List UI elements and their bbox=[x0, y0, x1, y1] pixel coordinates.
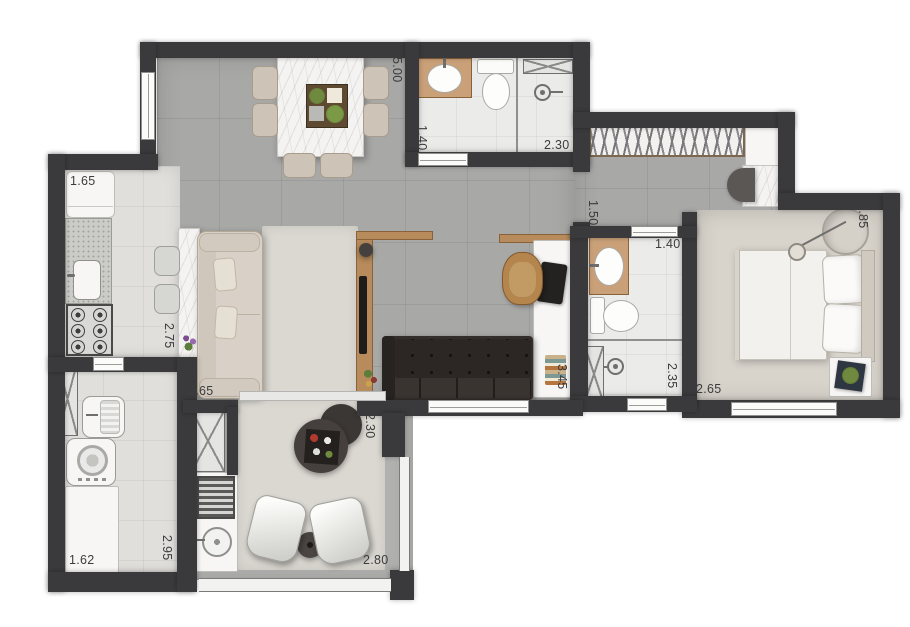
entry-window bbox=[141, 72, 155, 140]
shelf-header bbox=[356, 231, 433, 240]
dining-chair bbox=[252, 103, 278, 137]
vanity-stool bbox=[727, 168, 755, 202]
living-rug bbox=[262, 226, 358, 402]
wall bbox=[682, 212, 697, 404]
dimension-label: 2.35 bbox=[665, 363, 679, 389]
sofa-pillow bbox=[214, 305, 238, 339]
balcony-railing-side bbox=[399, 457, 410, 571]
speaker-icon bbox=[359, 243, 373, 257]
bedroom-window bbox=[731, 402, 837, 416]
dimension-label: 2.30 bbox=[544, 138, 570, 152]
dimension-label: 1.40 bbox=[415, 125, 429, 151]
tank-washboard bbox=[100, 400, 120, 434]
wall bbox=[48, 572, 195, 592]
shower-screen bbox=[588, 339, 682, 341]
wall bbox=[778, 193, 900, 210]
study-window bbox=[428, 400, 529, 413]
bed-fold-line bbox=[790, 251, 791, 359]
sofa-arm bbox=[199, 233, 260, 252]
washer-door-icon bbox=[77, 445, 108, 476]
washer-knobs bbox=[78, 478, 106, 481]
bed-foot-line bbox=[735, 250, 740, 360]
centerpiece-plate bbox=[327, 88, 342, 103]
centerpiece-plant2-icon bbox=[326, 105, 344, 123]
bathroom1-door bbox=[418, 153, 468, 166]
wall bbox=[778, 112, 795, 204]
nightstand-plant-icon bbox=[842, 367, 859, 384]
tv bbox=[359, 276, 367, 354]
fridge-divider bbox=[68, 206, 113, 207]
dimension-label: 2.65 bbox=[696, 382, 722, 396]
grill-icon bbox=[197, 476, 235, 519]
dining-chair bbox=[363, 66, 389, 100]
wall bbox=[48, 154, 65, 592]
bar-stool bbox=[154, 246, 180, 276]
bar-stool bbox=[154, 284, 180, 314]
wall bbox=[382, 413, 405, 457]
bath1-tap-icon bbox=[443, 58, 446, 68]
shower-arm-icon bbox=[549, 91, 563, 93]
dimension-label: 2.85 bbox=[856, 203, 870, 229]
kitchen-tap-icon bbox=[67, 274, 75, 277]
shower-head-icon bbox=[607, 358, 624, 375]
wall bbox=[227, 407, 238, 475]
toilet-bowl bbox=[603, 300, 639, 332]
dimension-label: 1.40 bbox=[655, 237, 681, 251]
dimension-label: 2.30 bbox=[363, 413, 377, 439]
kitchen-sink bbox=[73, 260, 101, 300]
shower-screen bbox=[516, 58, 518, 153]
tank-tap-icon bbox=[86, 414, 98, 416]
wall bbox=[570, 232, 588, 404]
desk-chair-seat bbox=[509, 262, 536, 297]
dimension-label: 5.00 bbox=[390, 57, 404, 83]
burner-icon bbox=[71, 308, 85, 322]
dining-chair bbox=[283, 153, 316, 178]
wardrobe-hangers bbox=[589, 126, 745, 157]
gourmet-sink-icon bbox=[202, 527, 232, 557]
bathroom2-window bbox=[627, 398, 667, 411]
panel-plant-icon bbox=[362, 365, 379, 390]
gourmet-tap-icon bbox=[196, 539, 205, 541]
bed-pillow bbox=[822, 254, 867, 305]
wall bbox=[883, 193, 900, 418]
dimension-label: 2.95 bbox=[160, 535, 174, 561]
centerpiece-plant-icon bbox=[309, 88, 325, 104]
bed-pillow bbox=[822, 303, 867, 354]
bath2-tap-icon bbox=[589, 264, 599, 267]
sofa-pillow bbox=[213, 257, 238, 292]
bath1-niche bbox=[523, 59, 573, 74]
balcony-threshold bbox=[239, 391, 386, 401]
burner-icon bbox=[71, 324, 85, 338]
coffee-tray bbox=[304, 429, 340, 465]
headboard bbox=[861, 250, 875, 362]
dimension-label: 3.45 bbox=[555, 364, 569, 390]
study-sofa-back bbox=[395, 339, 531, 378]
burner-icon bbox=[93, 324, 107, 338]
wall bbox=[573, 42, 590, 172]
dimension-label: 5.65 bbox=[188, 384, 214, 398]
centerpiece-stone bbox=[309, 106, 324, 121]
burner-icon bbox=[93, 340, 107, 354]
wall bbox=[573, 112, 795, 128]
bathroom2-door bbox=[631, 226, 678, 237]
study-sofa-seat bbox=[384, 378, 531, 398]
laundry-door bbox=[93, 357, 124, 371]
toilet-bowl bbox=[482, 73, 510, 110]
bar-flowers-icon bbox=[181, 332, 198, 353]
burner-icon bbox=[71, 340, 85, 354]
lamp-base-icon bbox=[788, 243, 806, 261]
dimension-label: 1.65 bbox=[70, 174, 96, 188]
dimension-label: 1.50 bbox=[586, 200, 600, 226]
bed bbox=[735, 250, 827, 360]
dining-chair bbox=[252, 66, 278, 100]
toilet-tank bbox=[477, 59, 514, 74]
dimension-label: 1.62 bbox=[69, 553, 95, 567]
burner-icon bbox=[93, 308, 107, 322]
wall bbox=[140, 42, 590, 58]
dimension-label: 2.75 bbox=[162, 323, 176, 349]
dimension-label: 2.80 bbox=[363, 553, 389, 567]
balcony-pillar bbox=[390, 570, 414, 600]
bath1-sink bbox=[427, 64, 462, 93]
dining-chair bbox=[363, 103, 389, 137]
dining-chair bbox=[320, 153, 353, 178]
floor-plan: 5.00 1.40 2.30 1.50 1.40 2.85 1.65 2.75 … bbox=[0, 0, 910, 627]
balcony-railing bbox=[199, 578, 391, 592]
